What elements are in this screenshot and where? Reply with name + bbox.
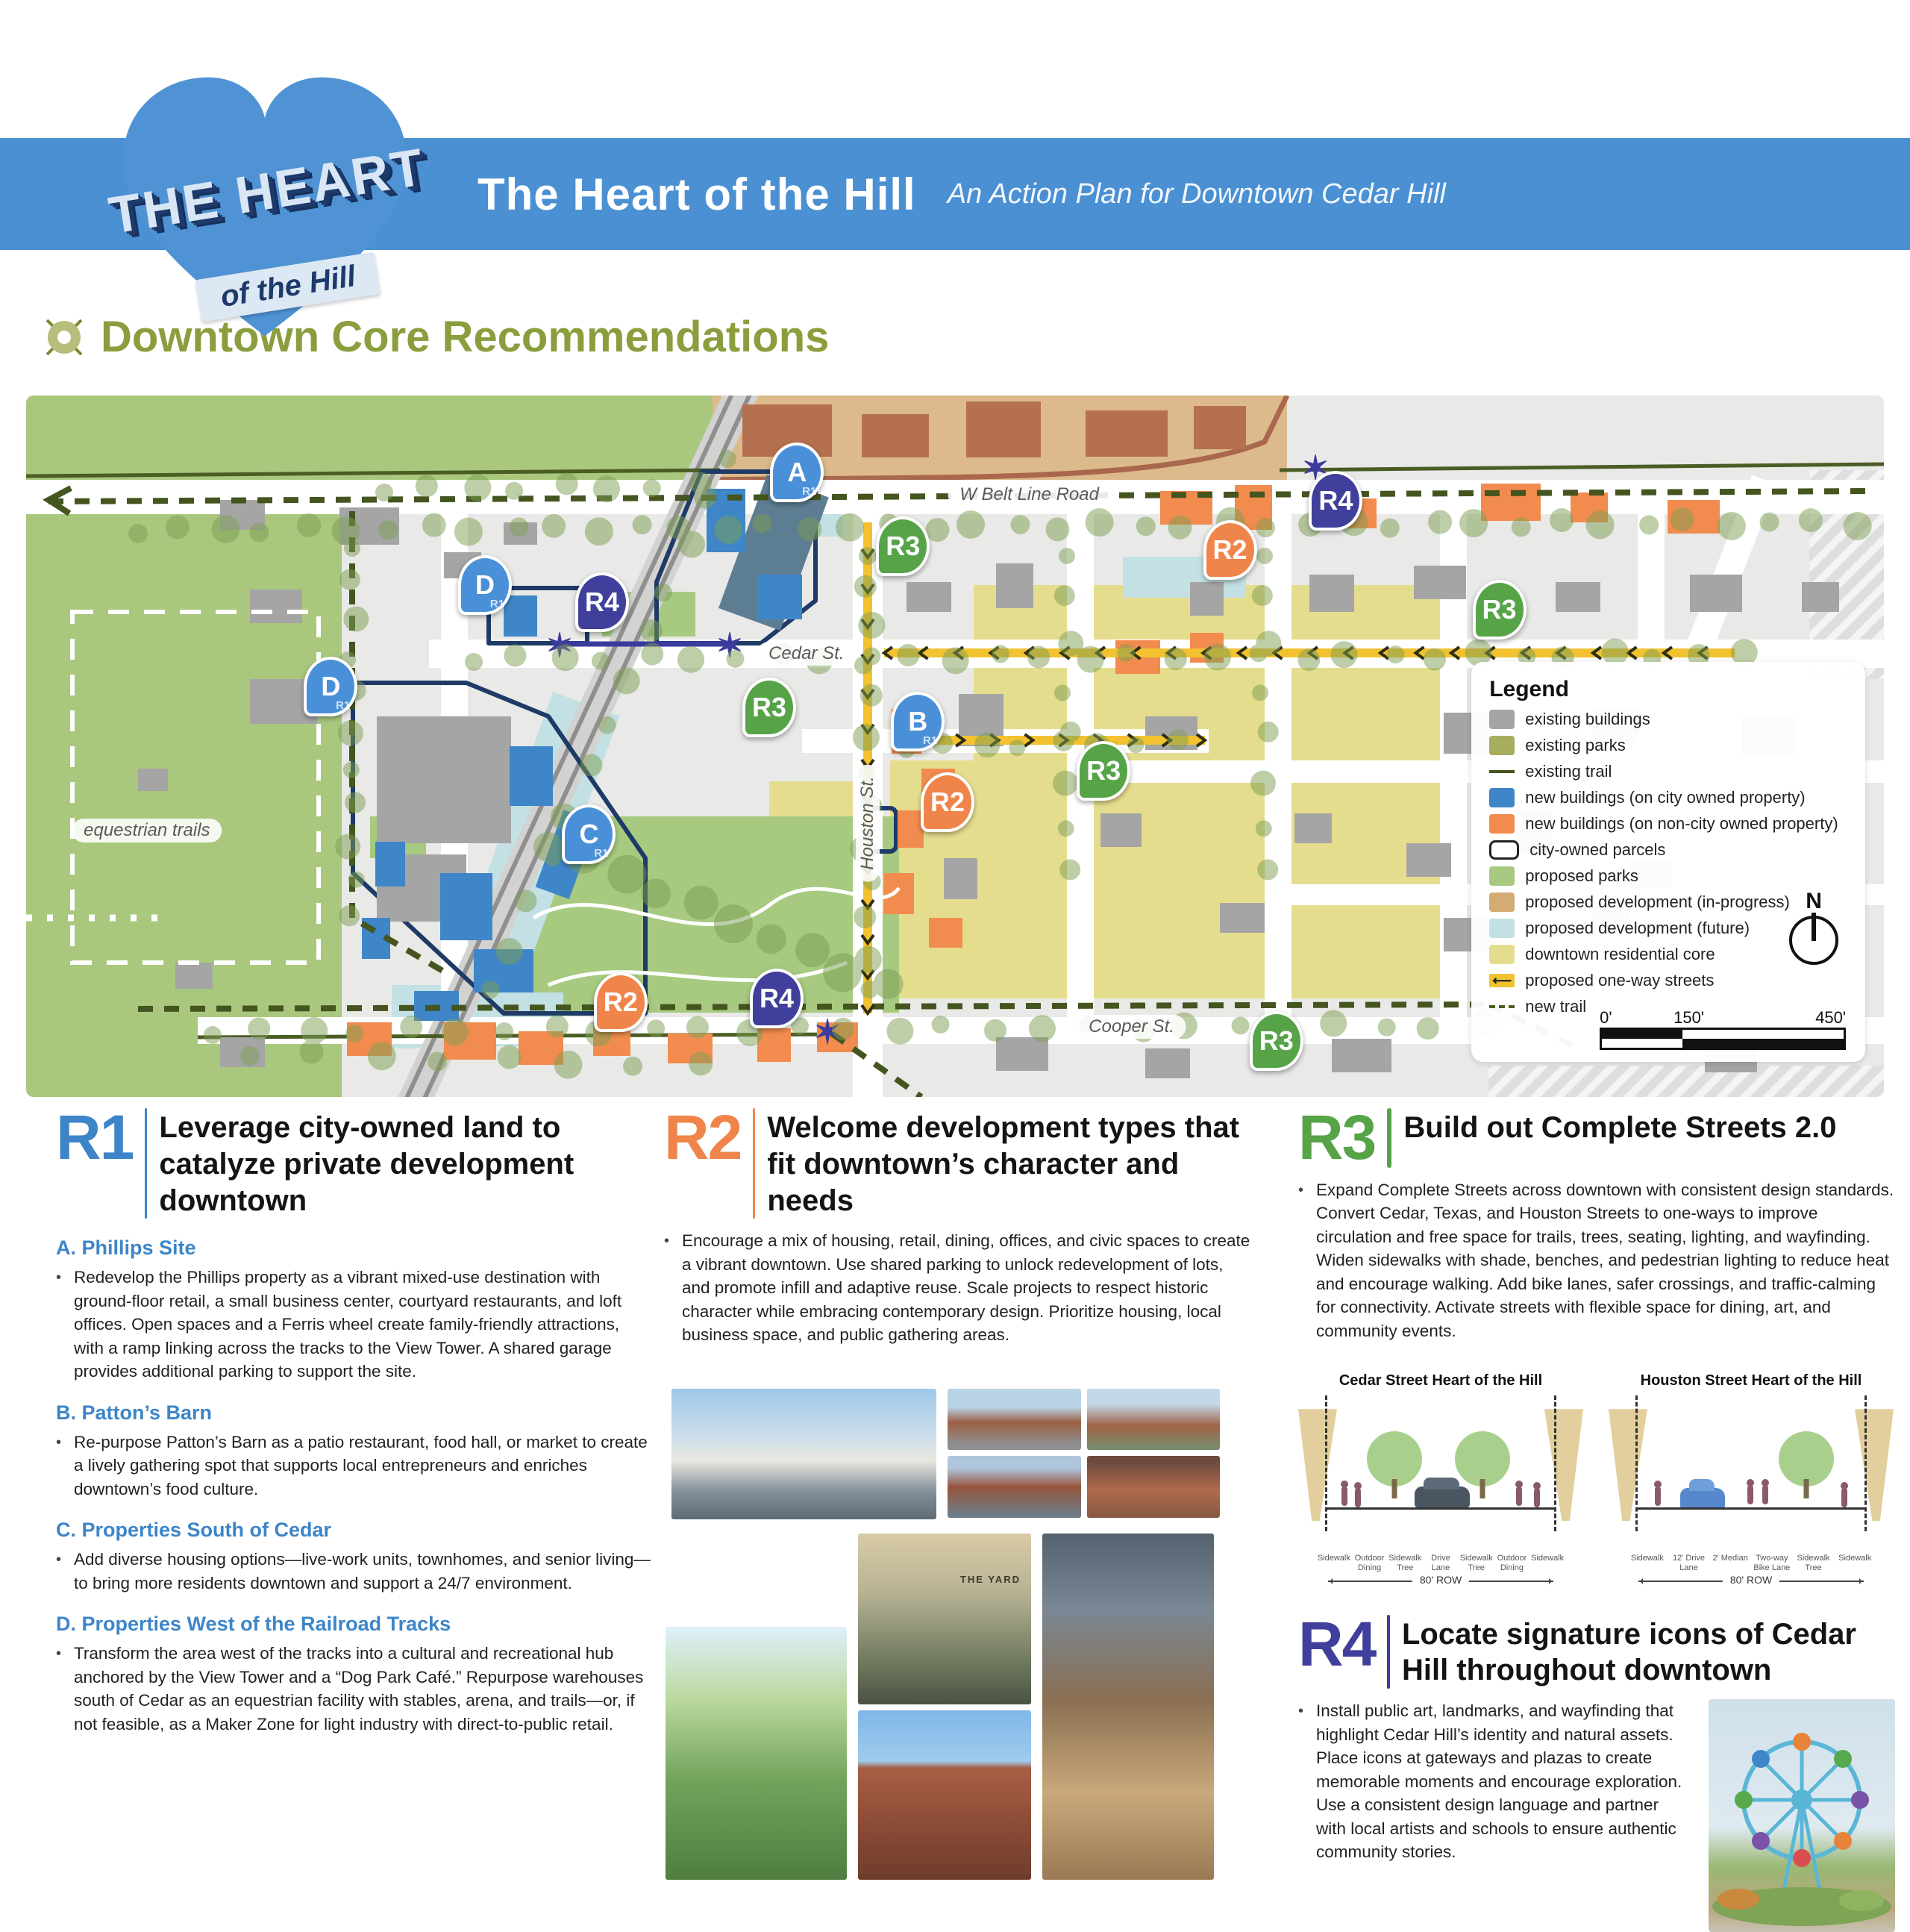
r2-divider: [753, 1108, 755, 1219]
map-badge-R4: R4: [575, 572, 629, 632]
street-tree-icon: [1455, 1431, 1510, 1486]
r1-subhead-b: B. Patton’s Barn: [56, 1401, 653, 1425]
recommendation-r1: R1 Leverage city-owned land to catalyze …: [56, 1108, 653, 1736]
north-compass-icon: N: [1788, 889, 1840, 965]
street-corner-rendering: [948, 1389, 1081, 1451]
cyclist-icon: [1762, 1485, 1768, 1504]
map-badge-R3: R3: [876, 516, 930, 576]
equestrian-trails-label: equestrian trails: [72, 819, 222, 842]
mixed-use-renderings: [948, 1389, 1220, 1518]
r2-bullet: Encourage a mix of housing, retail, dini…: [682, 1229, 1253, 1347]
car-icon: [1415, 1486, 1470, 1507]
ferris-wheel-photo: [1709, 1699, 1895, 1932]
cyclist-icon: [1747, 1485, 1753, 1504]
r3-title: Build out Complete Streets 2.0: [1403, 1110, 1836, 1146]
r2-number: R2: [664, 1108, 741, 1168]
swatch-new-buildings-city: [1489, 788, 1515, 807]
cedar-st-label: Cedar St.: [757, 642, 856, 666]
map-badge-B: BR1: [891, 692, 945, 751]
map-badge-C: CR1: [562, 804, 616, 864]
ferris-wheel-icon: [41, 314, 87, 360]
map-badge-D: DR1: [458, 555, 512, 615]
map-badge-D: DR1: [304, 657, 357, 716]
map-badge-R2: R2: [594, 972, 648, 1032]
map-badge-R3: R3: [1473, 580, 1527, 640]
page-subtitle: An Action Plan for Downtown Cedar Hill: [948, 178, 1446, 210]
recommendation-r3: R3 Build out Complete Streets 2.0 •Expan…: [1298, 1108, 1895, 1932]
recommendation-r2: R2 Welcome development types that fit do…: [664, 1108, 1253, 1885]
r2-title: Welcome development types that fit downt…: [767, 1110, 1253, 1219]
r1-subhead-c: C. Properties South of Cedar: [56, 1519, 653, 1542]
map-badge-R3: R3: [742, 678, 796, 737]
swatch-proposed-parks: [1489, 866, 1515, 886]
ferris-wheel-illustration: [1709, 1699, 1895, 1932]
storefront-street-rendering: [948, 1456, 1081, 1518]
swatch-one-way: ⟵: [1489, 974, 1515, 987]
recommendation-r4: R4 Locate signature icons of Cedar Hill …: [1298, 1615, 1895, 1932]
r2-photo-collage: THE YARD: [664, 1389, 1231, 1885]
r4-number: R4: [1298, 1615, 1375, 1675]
swatch-future: [1489, 919, 1515, 938]
pedestrian-icon: [1516, 1486, 1522, 1506]
street-cross-sections: Cedar Street Heart of the Hill Sidewalk …: [1298, 1372, 1895, 1581]
r1-divider: [145, 1108, 147, 1219]
pedestrian-icon: [1341, 1486, 1347, 1506]
swatch-residential-core: [1489, 945, 1515, 964]
map-badge-R2: R2: [921, 772, 974, 832]
downtown-plan-map: ✶✶ ✶✶ W Belt Line Road Cedar St. Houston…: [26, 396, 1884, 1097]
pedestrian-icon: [1841, 1488, 1847, 1507]
street-tree-icon: [1779, 1431, 1834, 1486]
r1-bullet-d: Transform the area west of the tracks in…: [74, 1642, 653, 1736]
swatch-existing-buildings: [1489, 710, 1515, 729]
heart-logo: THE HEART of the Hill: [86, 66, 444, 342]
r3-bullet: Expand Complete Streets across downtown …: [1316, 1178, 1895, 1343]
swatch-city-owned-parcels: [1489, 840, 1519, 860]
swatch-new-trail: [1489, 1005, 1515, 1008]
r1-bullet-c: Add diverse housing options—live-work un…: [74, 1548, 653, 1595]
belt-line-road-label: W Belt Line Road: [948, 483, 1111, 507]
yard-sign-text: THE YARD: [960, 1574, 1021, 1585]
pedestrian-icon: [1655, 1486, 1661, 1506]
alley-dining-rendering: [1087, 1456, 1221, 1518]
market-hall-photo: [1042, 1534, 1214, 1880]
r1-subhead-d: D. Properties West of the Railroad Track…: [56, 1613, 653, 1636]
scale-bar: 0' 150' 450': [1600, 1008, 1846, 1050]
car-icon: [1680, 1488, 1725, 1509]
r1-bullet-b: Re-purpose Patton’s Barn as a patio rest…: [74, 1431, 653, 1501]
cedar-street-cross-section: Cedar Street Heart of the Hill Sidewalk …: [1298, 1372, 1583, 1581]
r1-bullet-a: Redevelop the Phillips property as a vib…: [74, 1266, 653, 1384]
r4-bullet: Install public art, landmarks, and wayfi…: [1316, 1699, 1689, 1932]
houston-st-label: Houston St.: [856, 765, 880, 882]
r1-subhead-a: A. Phillips Site: [56, 1237, 653, 1260]
mixed-use-rendering: [1087, 1389, 1221, 1451]
outfitter-storefront-photo: [858, 1710, 1031, 1880]
page-title: The Heart of the Hill: [477, 169, 916, 220]
r1-title: Leverage city-owned land to catalyze pri…: [159, 1110, 653, 1219]
map-badge-R3: R3: [1250, 1011, 1303, 1071]
map-badge-R2: R2: [1203, 520, 1257, 580]
swatch-new-buildings-noncity: [1489, 814, 1515, 834]
r4-title: Locate signature icons of Cedar Hill thr…: [1402, 1616, 1895, 1689]
swatch-existing-trail: [1489, 770, 1515, 773]
yard-patio-photo: THE YARD: [858, 1534, 1031, 1704]
map-badge-R4: R4: [750, 969, 804, 1028]
map-badge-A: AR1: [770, 443, 824, 502]
r4-divider: [1387, 1615, 1390, 1689]
townhomes-photo: [671, 1389, 936, 1519]
r3-divider: [1387, 1108, 1391, 1168]
map-badge-R4: R4: [1309, 471, 1362, 531]
swatch-existing-parks: [1489, 736, 1515, 755]
pedestrian-icon: [1534, 1488, 1540, 1507]
r1-number: R1: [56, 1108, 133, 1168]
r3-number: R3: [1298, 1108, 1375, 1168]
map-legend: Legend existing buildings existing parks…: [1471, 662, 1865, 1062]
equestrian-paddock-photo: [666, 1627, 847, 1880]
cooper-st-label: Cooper St.: [1077, 1015, 1186, 1039]
legend-title: Legend: [1489, 677, 1847, 702]
swatch-inprogress: [1489, 892, 1515, 912]
houston-street-cross-section: Houston Street Heart of the Hill Sidewal…: [1609, 1372, 1894, 1581]
pedestrian-icon: [1355, 1488, 1361, 1507]
map-badge-R3: R3: [1077, 741, 1130, 801]
street-tree-icon: [1367, 1431, 1422, 1486]
